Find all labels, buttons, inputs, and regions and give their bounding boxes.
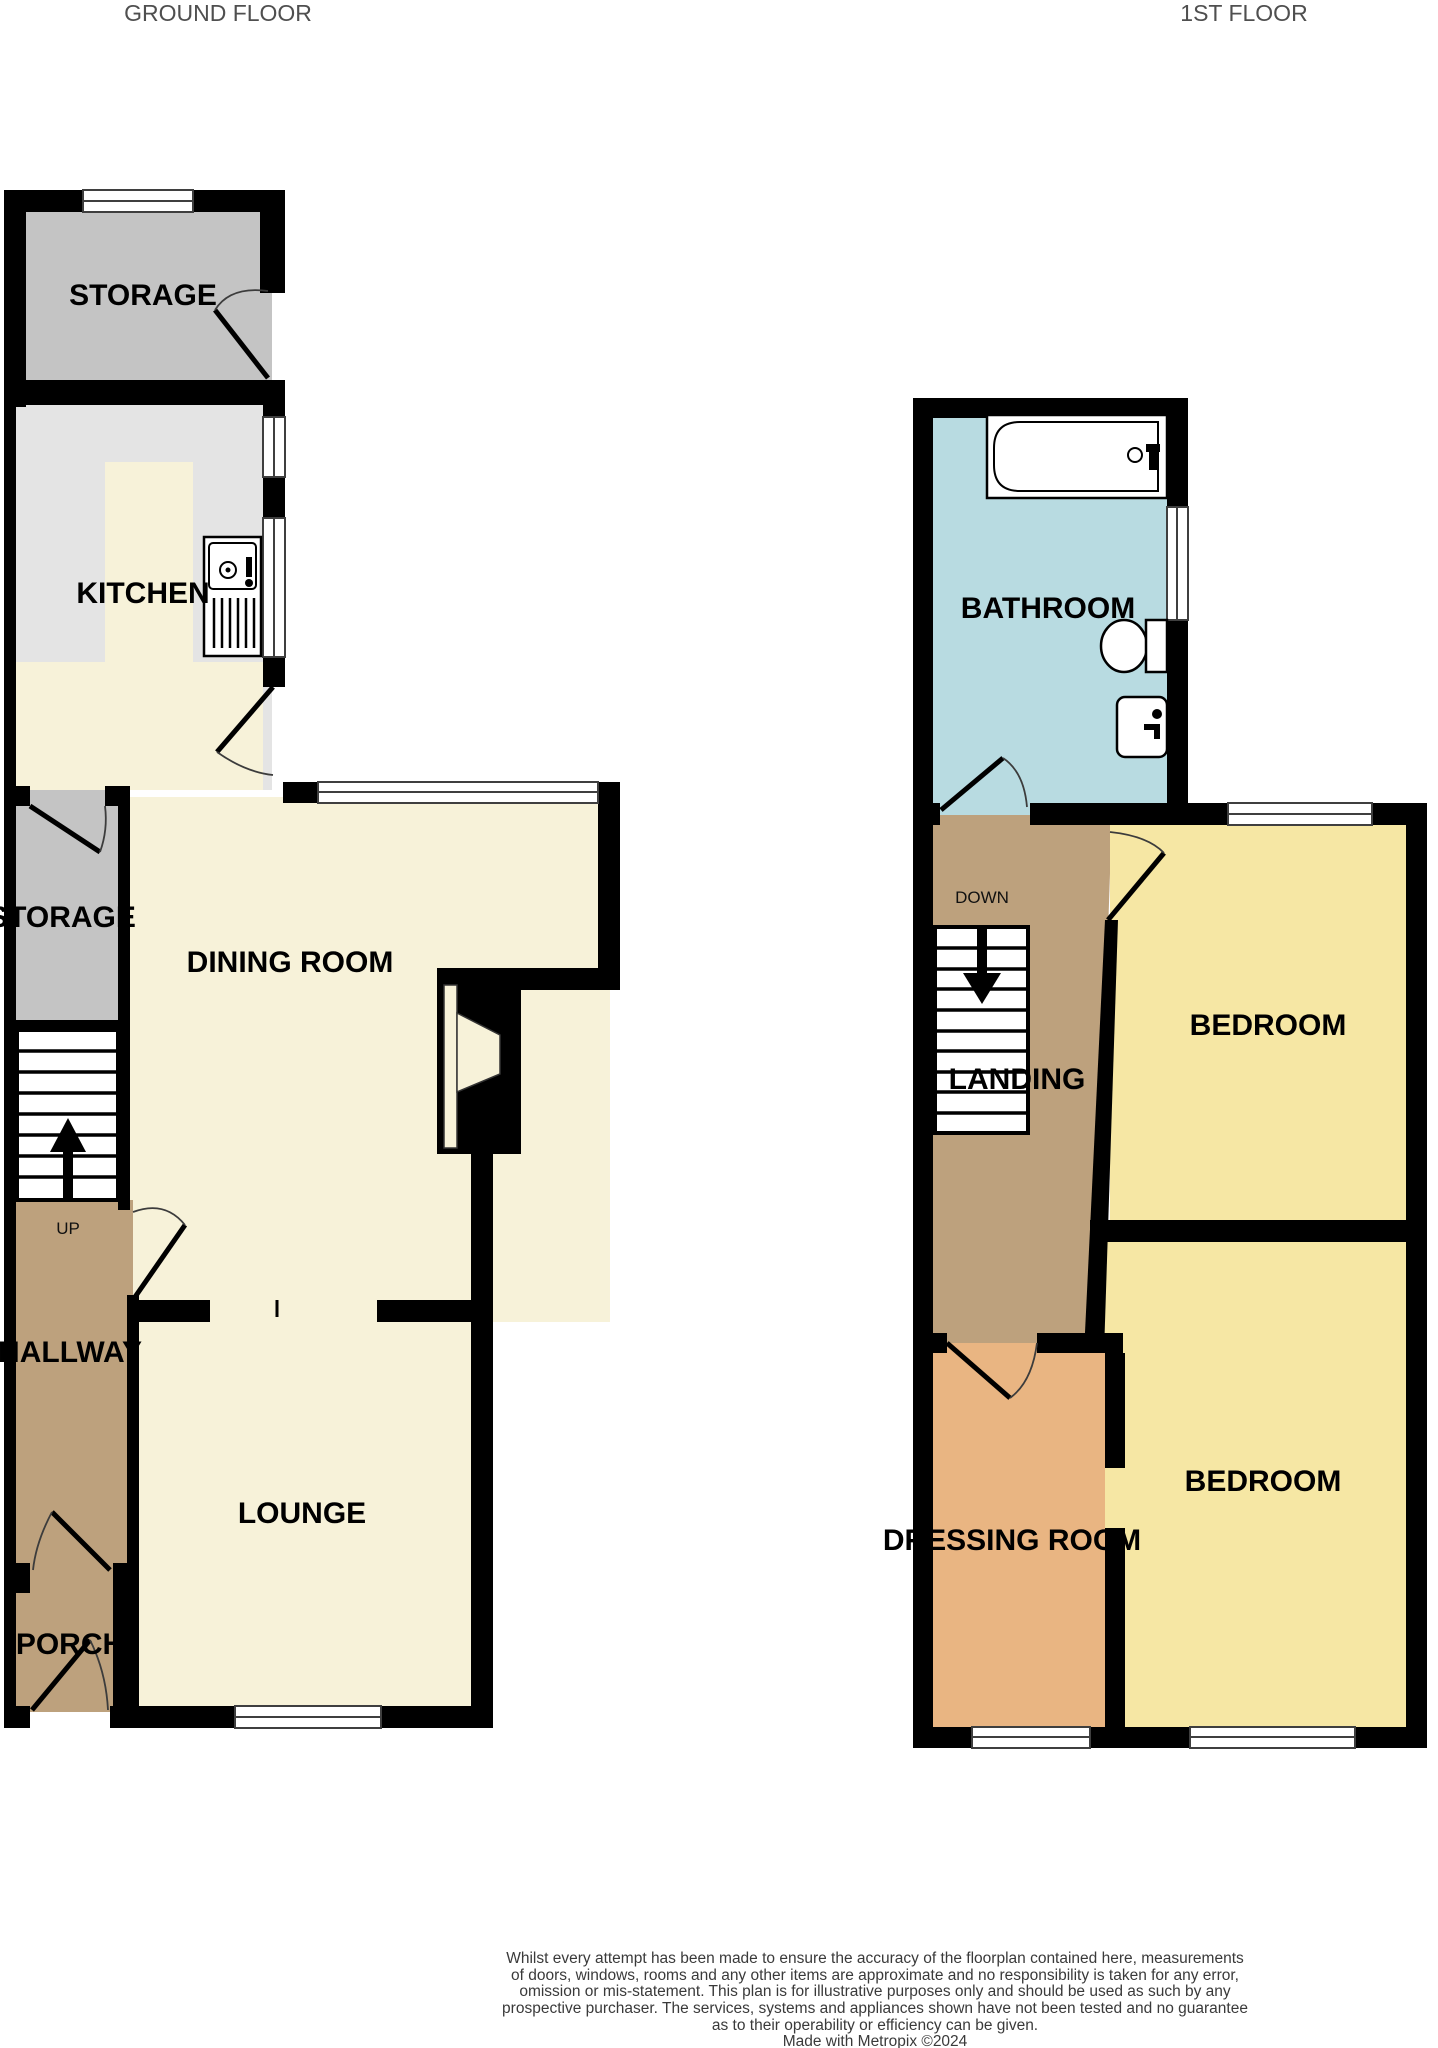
disclaimer-line: prospective purchaser. The services, sys… xyxy=(502,2000,1248,2017)
room-label-landing: LANDING xyxy=(949,1063,1086,1096)
room-label-kitchen: KITCHEN xyxy=(76,577,209,610)
disclaimer-line: of doors, windows, rooms and any other i… xyxy=(511,1967,1239,1984)
room-label-porch: PORCH xyxy=(16,1628,124,1661)
stair-label-down: DOWN xyxy=(955,888,1009,907)
kitchen-cream-patch xyxy=(105,462,193,672)
room-label-hallway: HALLWAY xyxy=(0,1336,142,1369)
room-label-storage-mid: STORAGE xyxy=(0,901,136,934)
floorplan-page: GROUND FLOOR 1ST FLOOR xyxy=(0,0,1438,2048)
window-icon xyxy=(235,1706,381,1728)
kitchen-cream-lower xyxy=(16,662,263,790)
window-icon xyxy=(263,518,285,657)
kitchen-sink-icon xyxy=(204,537,261,656)
disclaimer-line: omission or mis-statement. This plan is … xyxy=(519,1983,1231,2000)
window-icon xyxy=(83,190,193,212)
window-icon xyxy=(1167,507,1188,620)
room-label-bedroom-2: BEDROOM xyxy=(1185,1465,1342,1498)
window-icon xyxy=(1228,803,1372,825)
first-floor-plan: BATHROOM DOWN LANDING BEDROOM DRESSING R… xyxy=(883,398,1427,1748)
window-icon xyxy=(263,417,285,477)
disclaimer-line: Whilst every attempt has been made to en… xyxy=(506,1950,1244,1967)
floorplan-canvas: GROUND FLOOR 1ST FLOOR xyxy=(0,0,1438,2048)
room-label-dressing: DRESSING ROOM xyxy=(883,1524,1141,1557)
staircase-down xyxy=(935,927,1028,1133)
room-label-lounge: LOUNGE xyxy=(238,1497,366,1530)
first-floor-title: 1ST FLOOR xyxy=(1180,0,1307,26)
room-label-dining: DINING ROOM xyxy=(187,946,394,979)
room-dining xyxy=(124,797,610,1322)
ground-floor-title: GROUND FLOOR xyxy=(124,0,312,26)
room-label-bedroom-1: BEDROOM xyxy=(1190,1009,1347,1042)
toilet-icon xyxy=(1101,620,1167,672)
stair-label-up: UP xyxy=(56,1219,80,1238)
window-icon xyxy=(1190,1727,1355,1748)
window-icon xyxy=(972,1727,1090,1748)
fireplace-icon xyxy=(437,968,521,1154)
staircase-up xyxy=(17,1030,118,1200)
bathtub-icon xyxy=(987,415,1167,498)
room-label-storage-top: STORAGE xyxy=(69,279,217,312)
ground-floor-plan: STORAGE KITCHEN STORAGE DINING ROOM UP H… xyxy=(0,190,620,1728)
room-label-bathroom: BATHROOM xyxy=(961,592,1135,625)
window-icon xyxy=(318,782,598,803)
disclaimer-block: Whilst every attempt has been made to en… xyxy=(502,1950,1248,2048)
disclaimer-line: as to their operability or efficiency ca… xyxy=(712,2017,1038,2034)
sink-icon xyxy=(1117,697,1167,757)
disclaimer-credit: Made with Metropix ©2024 xyxy=(783,2033,968,2048)
